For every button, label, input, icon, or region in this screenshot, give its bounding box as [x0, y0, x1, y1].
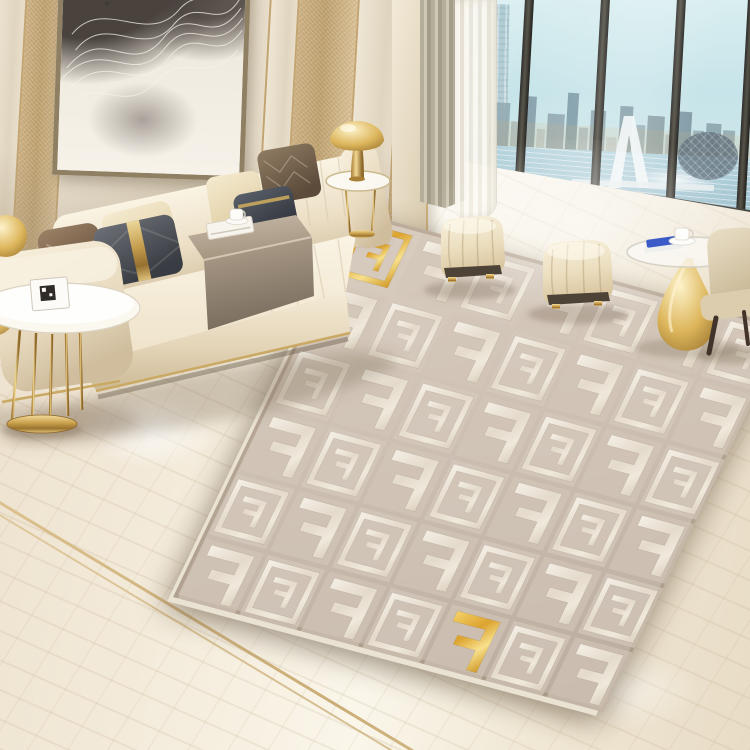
pouf-gold-foot: [486, 274, 494, 279]
pouf-right: [543, 240, 613, 309]
pouf-gold-foot: [552, 304, 560, 309]
living-room-scene: [0, 0, 750, 750]
lamp-table-base: [349, 230, 375, 238]
lamp-dome-shade: [330, 121, 384, 151]
table-gold-base: [7, 415, 77, 433]
pouf-gold-foot: [594, 301, 602, 306]
framed-card: [30, 277, 70, 311]
furniture-layer: [0, 0, 750, 750]
pouf-gold-foot: [448, 277, 456, 282]
card-qr-code: [40, 285, 56, 301]
pouf-left: [441, 216, 505, 282]
coffee-cup: [230, 209, 243, 220]
lamp-highlight: [340, 124, 356, 132]
chair-wood-leg: [744, 312, 748, 344]
coffee-cup: [675, 228, 689, 240]
